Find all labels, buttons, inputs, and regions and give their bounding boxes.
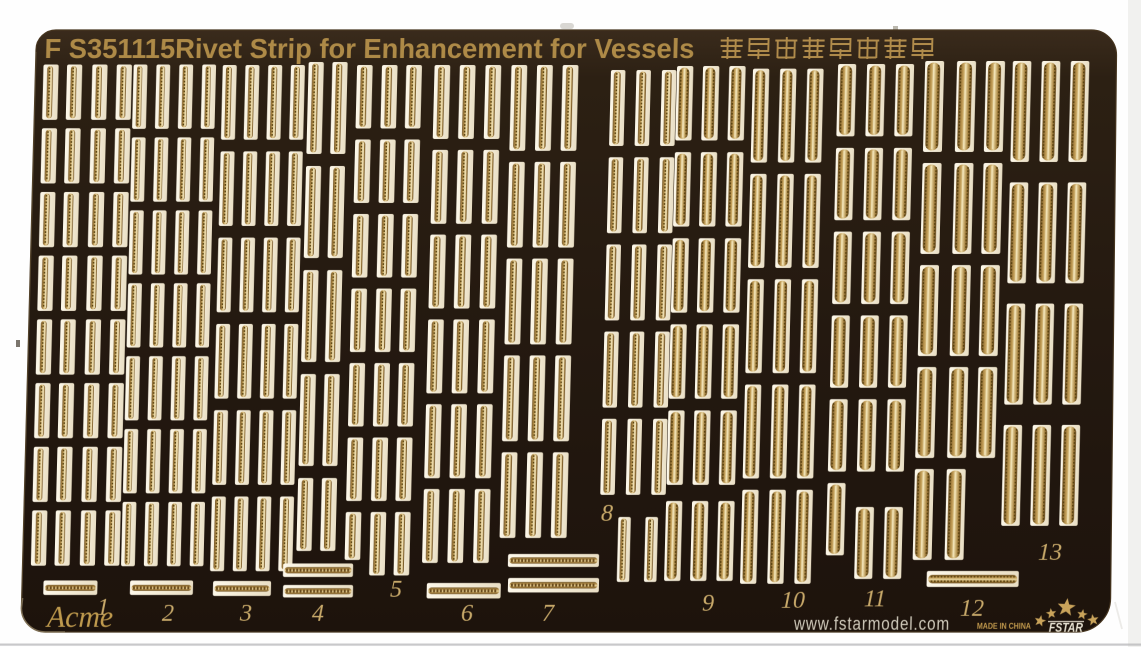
svg-text:11: 11 [863,587,886,613]
svg-text:10: 10 [781,588,806,614]
svg-text:6: 6 [461,601,474,627]
svg-text:F S351115Rivet Strip for Enhan: F S351115Rivet Strip for Enhancement for… [44,33,695,64]
svg-text:MADE IN CHINA: MADE IN CHINA [977,621,1031,631]
svg-text:2: 2 [162,601,175,627]
svg-text:8: 8 [601,501,614,527]
svg-text:9: 9 [702,591,715,617]
svg-text:12: 12 [960,596,985,622]
svg-text:5: 5 [390,577,403,603]
svg-text:7: 7 [542,601,556,627]
svg-text:3: 3 [239,601,253,627]
svg-text:www.fstarmodel.com: www.fstarmodel.com [793,614,950,634]
svg-text:Acme: Acme [45,599,114,634]
svg-text:4: 4 [312,601,325,627]
svg-text:13: 13 [1038,540,1063,566]
svg-text:FSTAR: FSTAR [1049,621,1083,635]
